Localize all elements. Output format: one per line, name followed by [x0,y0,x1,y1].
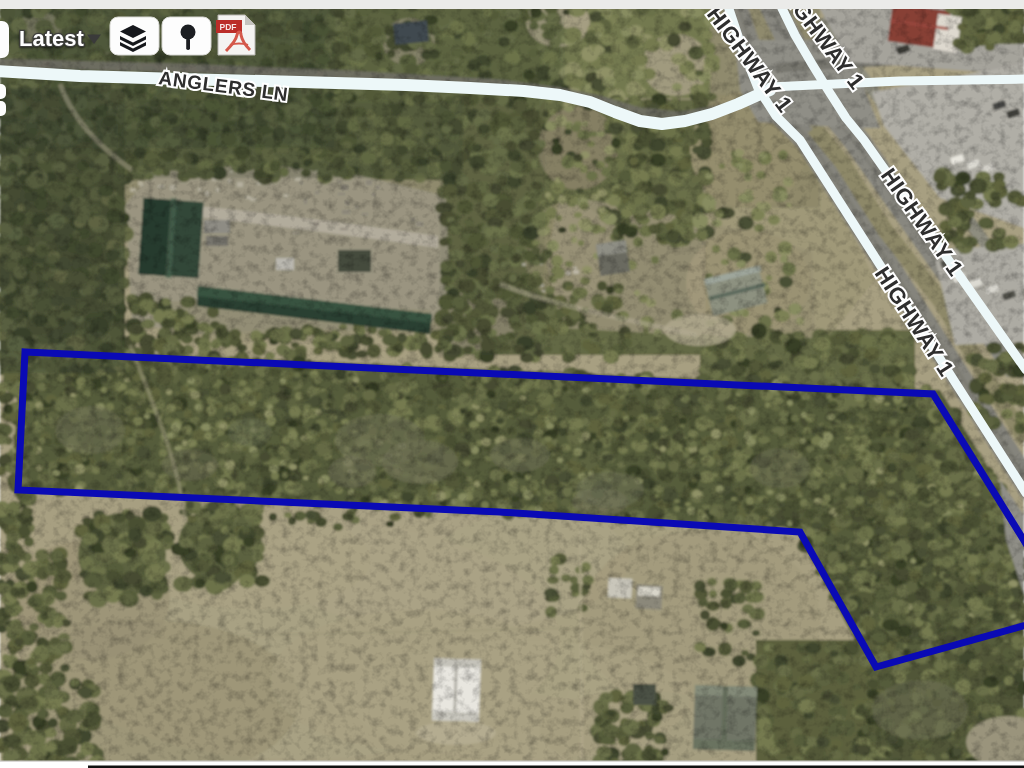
svg-text:Latest: Latest [19,26,84,51]
svg-text:PDF: PDF [220,22,237,32]
